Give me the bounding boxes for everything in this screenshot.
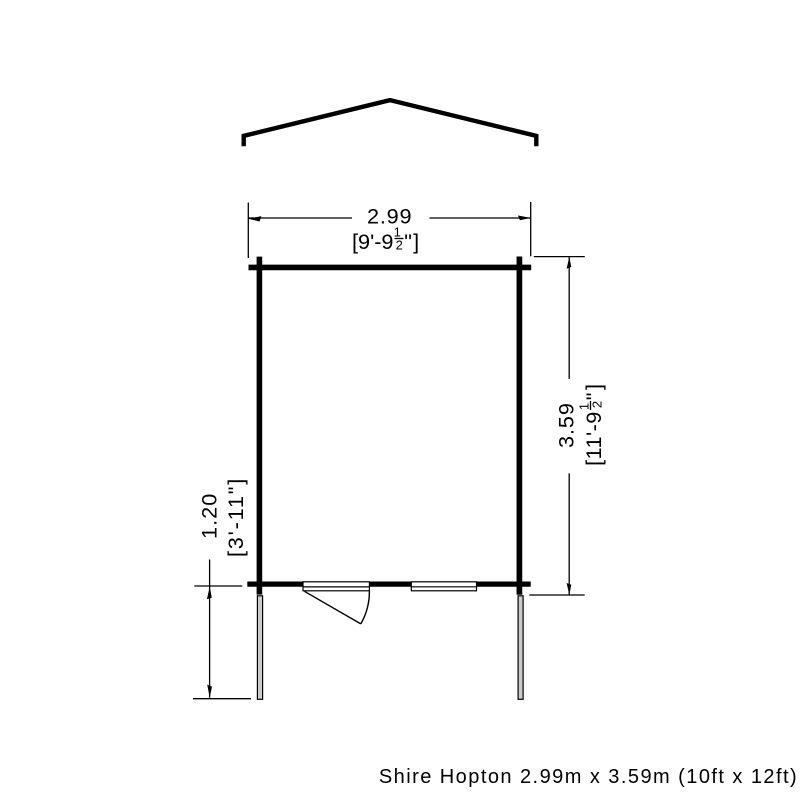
svg-text:2.99: 2.99 [367,203,412,228]
svg-text:[3'-11"]: [3'-11"] [223,477,248,557]
svg-text:2: 2 [589,401,604,408]
svg-text:[9'-9: [9'-9 [352,229,394,254]
svg-text:"]: "] [581,381,606,400]
svg-text:1.20: 1.20 [197,493,222,539]
svg-text:"]: "] [404,229,420,254]
svg-text:2: 2 [396,237,403,252]
svg-text:3.59: 3.59 [553,402,578,448]
svg-text:[11'-9: [11'-9 [581,411,606,466]
svg-text:Shire Hopton 2.99m x 3.59m (10: Shire Hopton 2.99m x 3.59m (10ft x 12ft) [379,766,798,788]
